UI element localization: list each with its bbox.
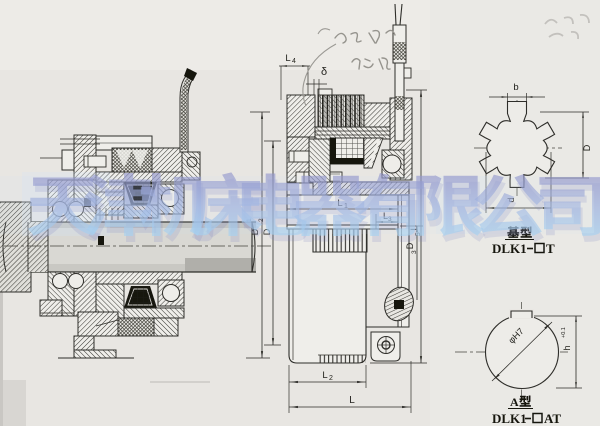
svg-text:T: T — [546, 241, 555, 256]
svg-text:+0.1: +0.1 — [561, 327, 567, 338]
svg-text:DLK1: DLK1 — [492, 241, 527, 256]
svg-text:4: 4 — [292, 58, 296, 65]
svg-text:D: D — [405, 242, 415, 249]
svg-text:L: L — [322, 370, 327, 381]
svg-text:δ: δ — [321, 66, 327, 78]
svg-text:L: L — [285, 53, 290, 64]
svg-text:A: A — [510, 395, 519, 409]
svg-text:DLK1: DLK1 — [492, 411, 527, 426]
svg-text:D: D — [582, 144, 592, 151]
svg-text:AT: AT — [544, 411, 561, 426]
svg-text:h: h — [562, 345, 572, 350]
svg-text:2: 2 — [329, 375, 333, 382]
svg-text:3: 3 — [411, 250, 418, 254]
svg-text:b: b — [513, 82, 518, 93]
svg-text:L: L — [349, 395, 355, 406]
